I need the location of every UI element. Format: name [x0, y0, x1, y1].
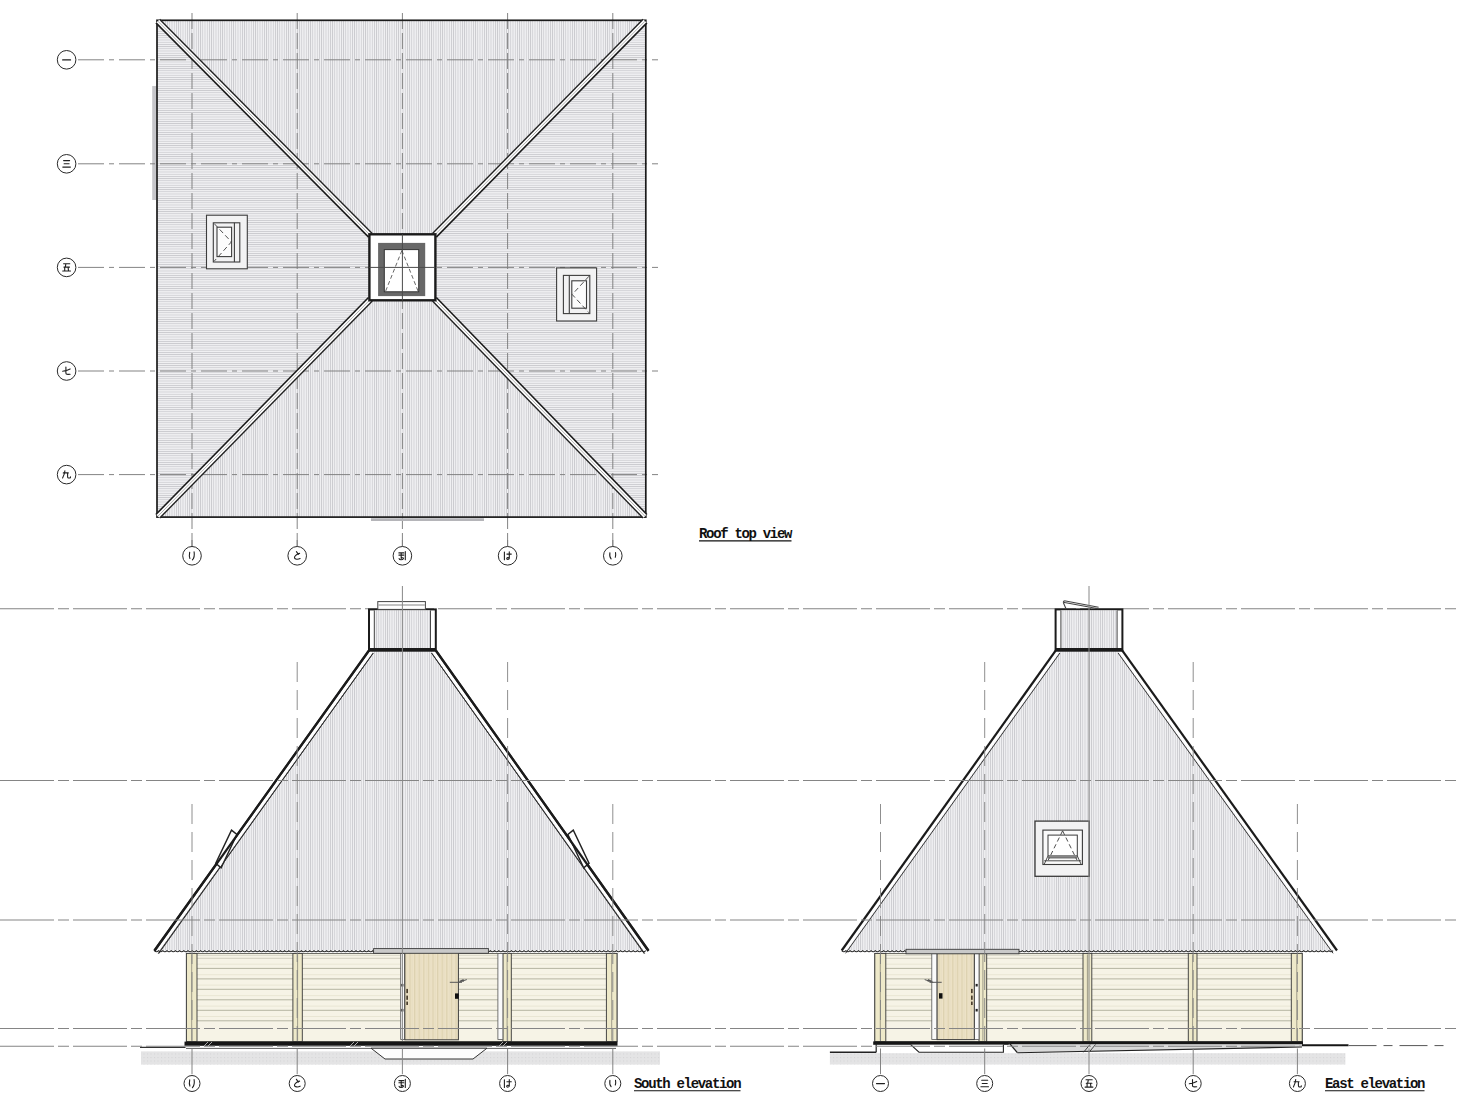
svg-text:East elevation: East elevation: [1325, 1076, 1425, 1092]
svg-text:South elevation: South elevation: [634, 1076, 741, 1092]
svg-text:Roof top view: Roof top view: [699, 526, 793, 542]
